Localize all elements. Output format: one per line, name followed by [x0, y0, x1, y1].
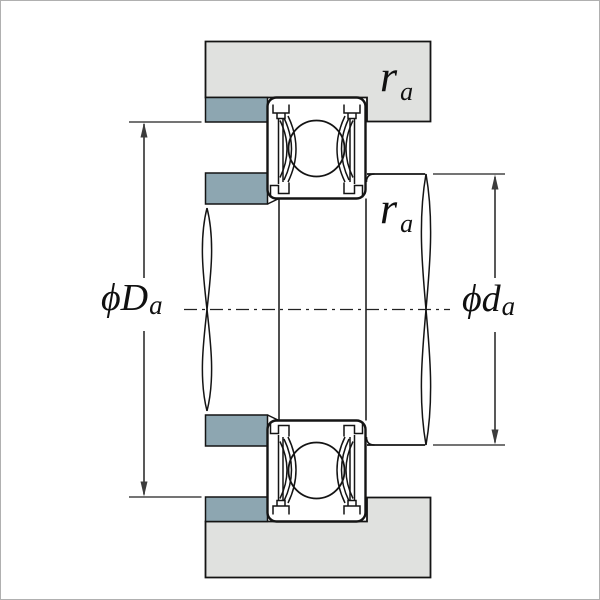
label-phi-D: ϕD	[101, 277, 148, 319]
label-r-top: r	[380, 52, 397, 101]
label-housing-fillet-radius: ra	[380, 55, 413, 99]
label-r-mid: r	[380, 184, 397, 233]
label-shaft-fillet-radius: ra	[380, 187, 413, 231]
label-phi-D-sub: a	[149, 290, 163, 320]
bearing-mounting-diagram: ϕDa ϕda ra ra	[0, 0, 600, 600]
label-phi-d-sub: a	[502, 291, 516, 321]
label-phi-d: ϕd	[462, 278, 501, 320]
label-r-top-sub: a	[400, 77, 413, 106]
lower-half-section	[129, 310, 505, 578]
label-housing-abutment-diameter: ϕDa	[101, 279, 163, 317]
label-shaft-abutment-diameter: ϕda	[462, 280, 515, 318]
label-r-mid-sub: a	[400, 209, 413, 238]
upper-half-section	[129, 42, 505, 310]
